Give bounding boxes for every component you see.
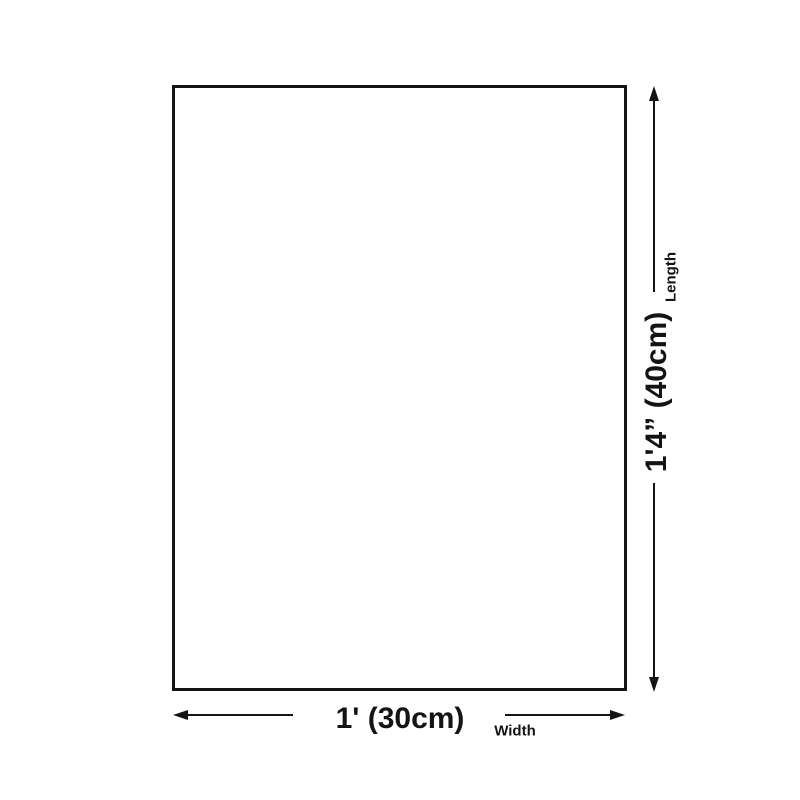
product-outline-rectangle (172, 85, 627, 691)
width-arrow-left-segment (187, 714, 293, 716)
length-axis-label: Length (663, 252, 680, 302)
arrow-up-icon (649, 86, 659, 101)
arrow-down-icon (649, 677, 659, 692)
length-dimension-value: 1'4” (40cm) (640, 312, 674, 473)
arrow-left-icon (173, 710, 188, 720)
width-axis-label: Width (494, 723, 536, 740)
length-arrow-upper-segment (653, 100, 655, 292)
width-dimension-value: 1' (30cm) (336, 702, 465, 736)
dimension-diagram: 1'4” (40cm) Length 1' (30cm) Width (0, 0, 800, 800)
width-arrow-right-segment (505, 714, 611, 716)
arrow-right-icon (610, 710, 625, 720)
length-arrow-lower-segment (653, 483, 655, 678)
